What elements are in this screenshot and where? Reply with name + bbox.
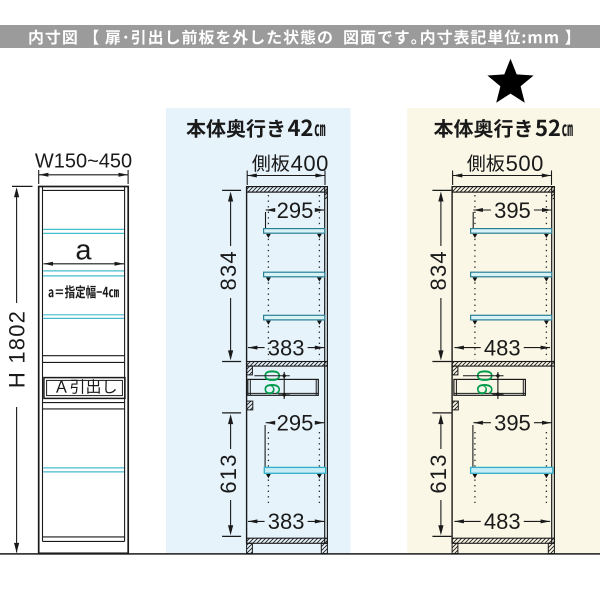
svg-text:834: 834 [216, 250, 241, 290]
svg-text:395: 395 [494, 198, 531, 223]
svg-text:400: 400 [291, 151, 329, 176]
svg-text:483: 483 [484, 509, 521, 534]
svg-text:90: 90 [473, 368, 498, 395]
svg-text:383: 383 [268, 335, 305, 360]
svg-text:500: 500 [506, 151, 544, 176]
svg-text:90: 90 [260, 368, 285, 395]
svg-text:383: 383 [268, 509, 305, 534]
svg-text:834: 834 [426, 250, 451, 290]
svg-text:613: 613 [426, 453, 451, 493]
svg-text:295: 295 [277, 198, 314, 223]
svg-text:a: a [75, 235, 92, 267]
svg-text:W150~450: W150~450 [35, 151, 132, 173]
svg-text:H 1802: H 1802 [4, 310, 29, 388]
svg-text:295: 295 [277, 411, 314, 436]
svg-text:395: 395 [494, 411, 531, 436]
svg-text:613: 613 [216, 453, 241, 493]
svg-text:483: 483 [484, 335, 521, 360]
